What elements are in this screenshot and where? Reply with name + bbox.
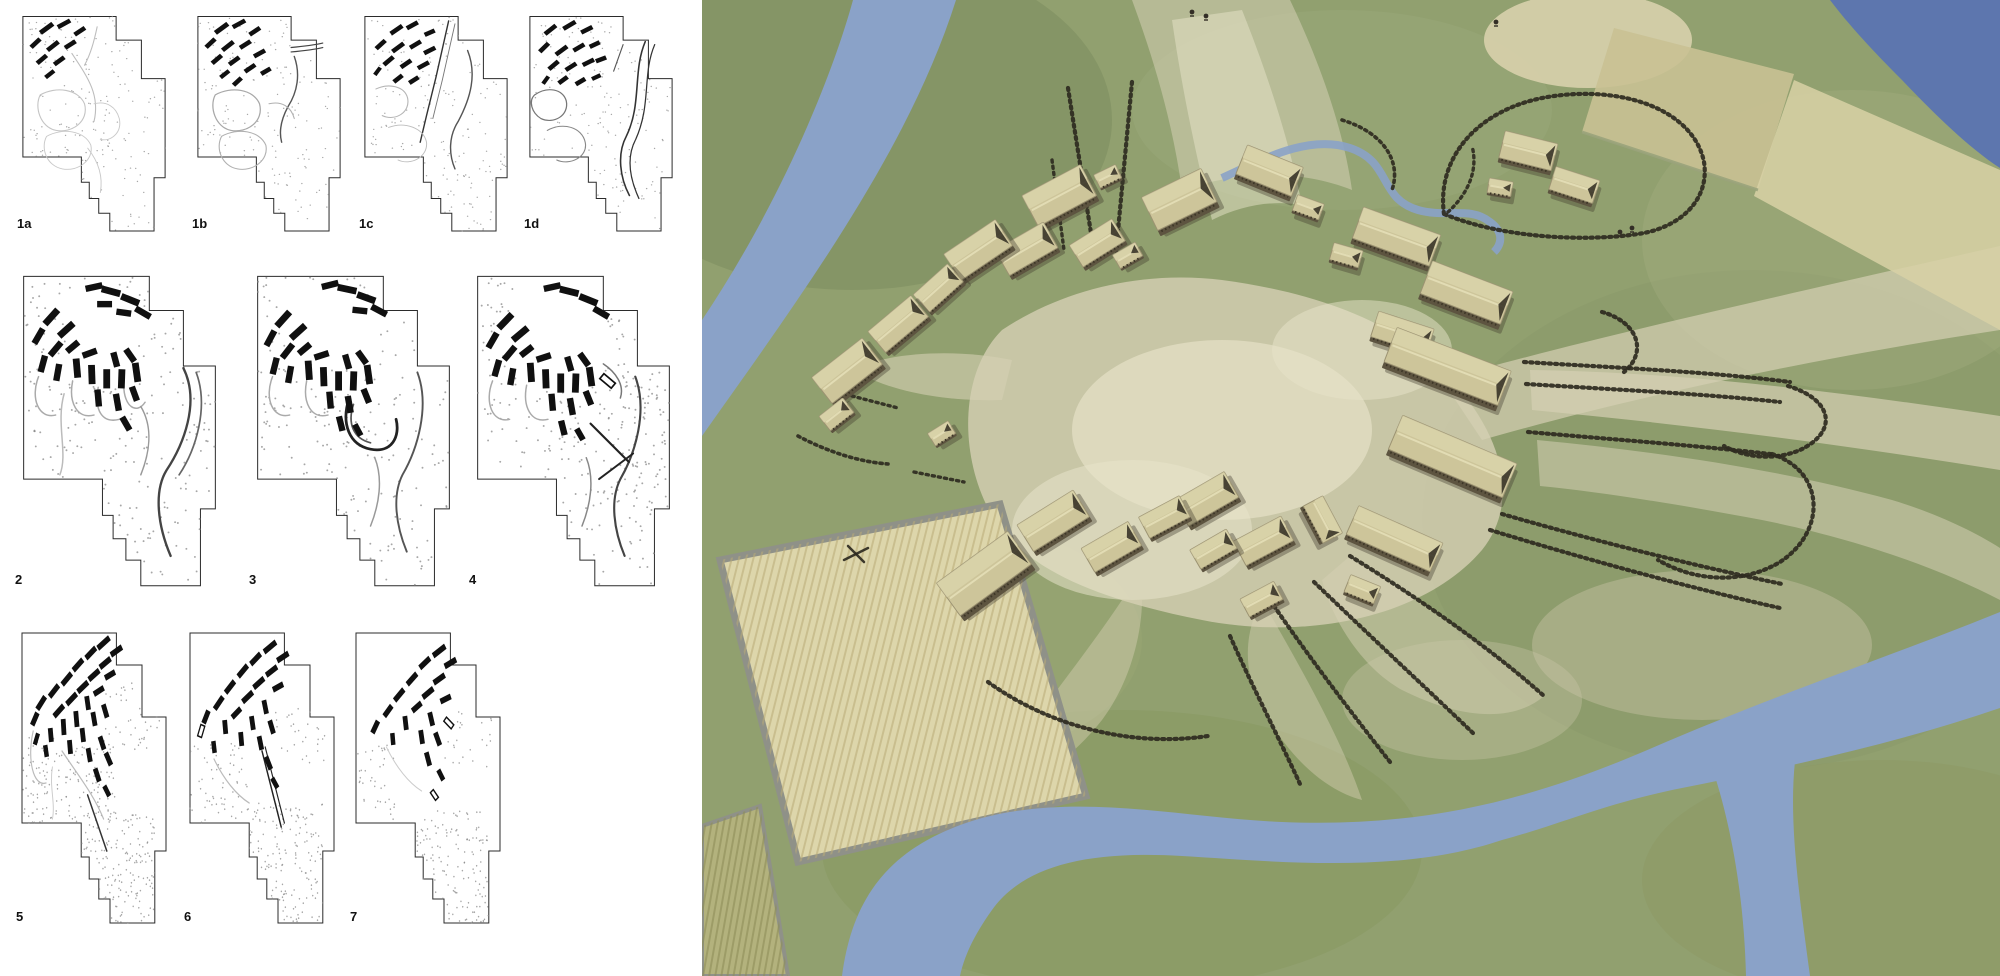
phase-panel-svg-2	[13, 270, 226, 590]
phase-panel-1d	[522, 12, 680, 234]
building-footprint	[527, 363, 535, 383]
phase-panel-1c	[357, 12, 515, 234]
phase-panel-svg-7	[348, 627, 508, 927]
tiny-figure	[1190, 10, 1195, 15]
phase-panel-svg-1a	[15, 12, 173, 234]
phase-panel-1b	[190, 12, 348, 234]
phase-panel-svg-6	[182, 627, 342, 927]
terrain-layer	[702, 0, 2000, 976]
excavation-outline	[356, 633, 500, 923]
phase-label-5: 5	[16, 910, 23, 923]
phase-panel-svg-1b	[190, 12, 348, 234]
building-footprint	[350, 371, 357, 390]
phase-panel-1a	[15, 12, 173, 234]
tiny-figure	[1618, 230, 1623, 235]
tiny-figure	[1494, 20, 1499, 25]
phase-label-7: 7	[350, 910, 357, 923]
phase-panel-3	[247, 270, 460, 590]
phase-panel-7	[348, 627, 508, 927]
phase-panel-5	[14, 627, 174, 927]
phase-panel-4	[467, 270, 680, 590]
building-footprint	[320, 367, 327, 386]
phase-label-6: 6	[184, 910, 191, 923]
phase-panel-svg-1c	[357, 12, 515, 234]
phase-label-4: 4	[469, 573, 476, 586]
building-footprint	[305, 360, 313, 380]
building-footprint	[572, 373, 579, 392]
phase-panel-svg-4	[467, 270, 680, 590]
phase-label-1a: 1a	[17, 217, 31, 230]
building-footprint	[61, 719, 67, 735]
phase-label-1d: 1d	[524, 217, 539, 230]
building-footprint	[335, 371, 342, 390]
phase-label-2: 2	[15, 573, 22, 586]
phase-panel-svg-1d	[522, 12, 680, 234]
phase-panel-6	[182, 627, 342, 927]
phase-plan-diagrams: 1a1b1c1d234567	[0, 0, 702, 976]
phase-panel-svg-3	[247, 270, 460, 590]
figure-root: 1a1b1c1d234567	[0, 0, 2000, 976]
phase-label-1c: 1c	[359, 217, 373, 230]
building-footprint	[88, 365, 95, 384]
building-footprint	[103, 369, 110, 388]
excavation-outline	[365, 16, 507, 231]
village-model-photo	[702, 0, 2000, 976]
phase-label-3: 3	[249, 573, 256, 586]
village-model-scene	[702, 0, 2000, 976]
terrain-shape	[1342, 640, 1582, 760]
phase-panel-svg-5	[14, 627, 174, 927]
tiny-figure	[1630, 226, 1635, 231]
building-footprint	[557, 373, 564, 392]
building-footprint	[118, 369, 125, 388]
tiny-figure	[1204, 14, 1209, 19]
building-footprint	[97, 301, 112, 307]
phase-label-1b: 1b	[192, 217, 207, 230]
building-footprint	[542, 369, 549, 388]
phase-panel-2	[13, 270, 226, 590]
excavation-outline	[24, 276, 216, 585]
excavation-outline	[530, 16, 672, 231]
